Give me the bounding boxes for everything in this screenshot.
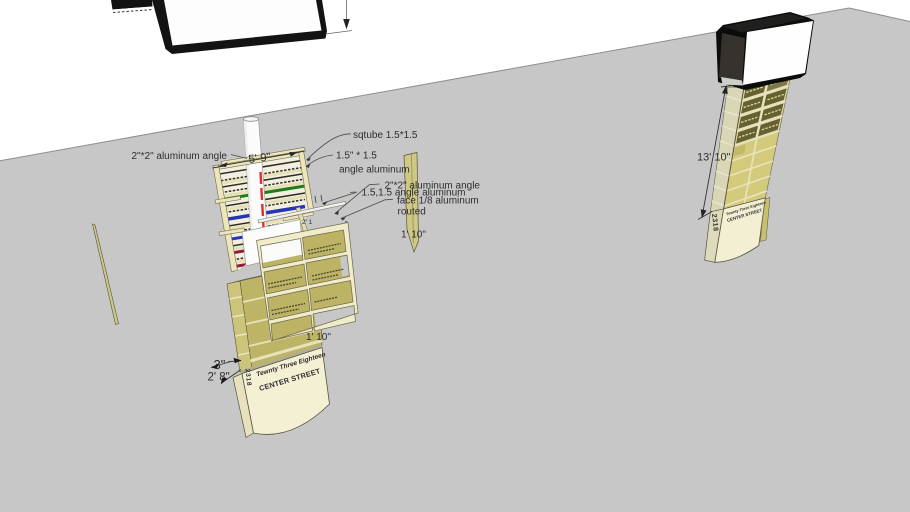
svg-text:angle aluminum: angle aluminum xyxy=(339,165,410,176)
svg-text:face 1/8 aluminum: face 1/8 aluminum xyxy=(397,196,479,207)
svg-text:2' 1: 2' 1 xyxy=(302,219,313,226)
svg-text:1' 10": 1' 10" xyxy=(401,230,426,241)
svg-text:1.5" * 1.5: 1.5" * 1.5 xyxy=(336,151,377,162)
svg-text:1' 10": 1' 10" xyxy=(306,332,331,343)
svg-text:2"*2" aluminum angle: 2"*2" aluminum angle xyxy=(132,151,228,162)
svg-text:sqtube 1.5*1.5: sqtube 1.5*1.5 xyxy=(353,130,418,141)
svg-text:2' 8": 2' 8" xyxy=(208,372,230,384)
svg-text:routed: routed xyxy=(398,207,426,218)
svg-text:13' 10": 13' 10" xyxy=(697,152,731,164)
